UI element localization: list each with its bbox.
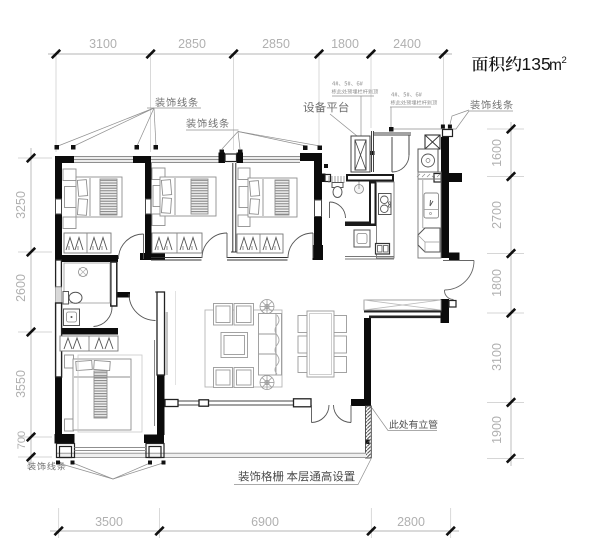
svg-text:2600: 2600: [14, 274, 28, 302]
svg-text:1600: 1600: [490, 139, 504, 167]
svg-text:2850: 2850: [262, 37, 290, 51]
svg-text:3550: 3550: [14, 370, 28, 398]
svg-text:3500: 3500: [95, 515, 123, 529]
svg-text:3100: 3100: [490, 343, 504, 371]
svg-text:3250: 3250: [14, 191, 28, 219]
svg-text:2850: 2850: [178, 37, 206, 51]
svg-text:2: 2: [562, 55, 567, 66]
svg-text:2700: 2700: [490, 201, 504, 229]
svg-text:1800: 1800: [331, 37, 359, 51]
svg-text:1900: 1900: [490, 416, 504, 444]
svg-text:700: 700: [16, 431, 28, 449]
svg-text:3100: 3100: [89, 37, 117, 51]
svg-text:2400: 2400: [393, 37, 421, 51]
svg-text:2800: 2800: [397, 515, 425, 529]
svg-text:135: 135: [522, 54, 551, 74]
svg-text:6900: 6900: [251, 515, 279, 529]
svg-text:1800: 1800: [490, 269, 504, 297]
svg-text:m: m: [549, 57, 562, 74]
